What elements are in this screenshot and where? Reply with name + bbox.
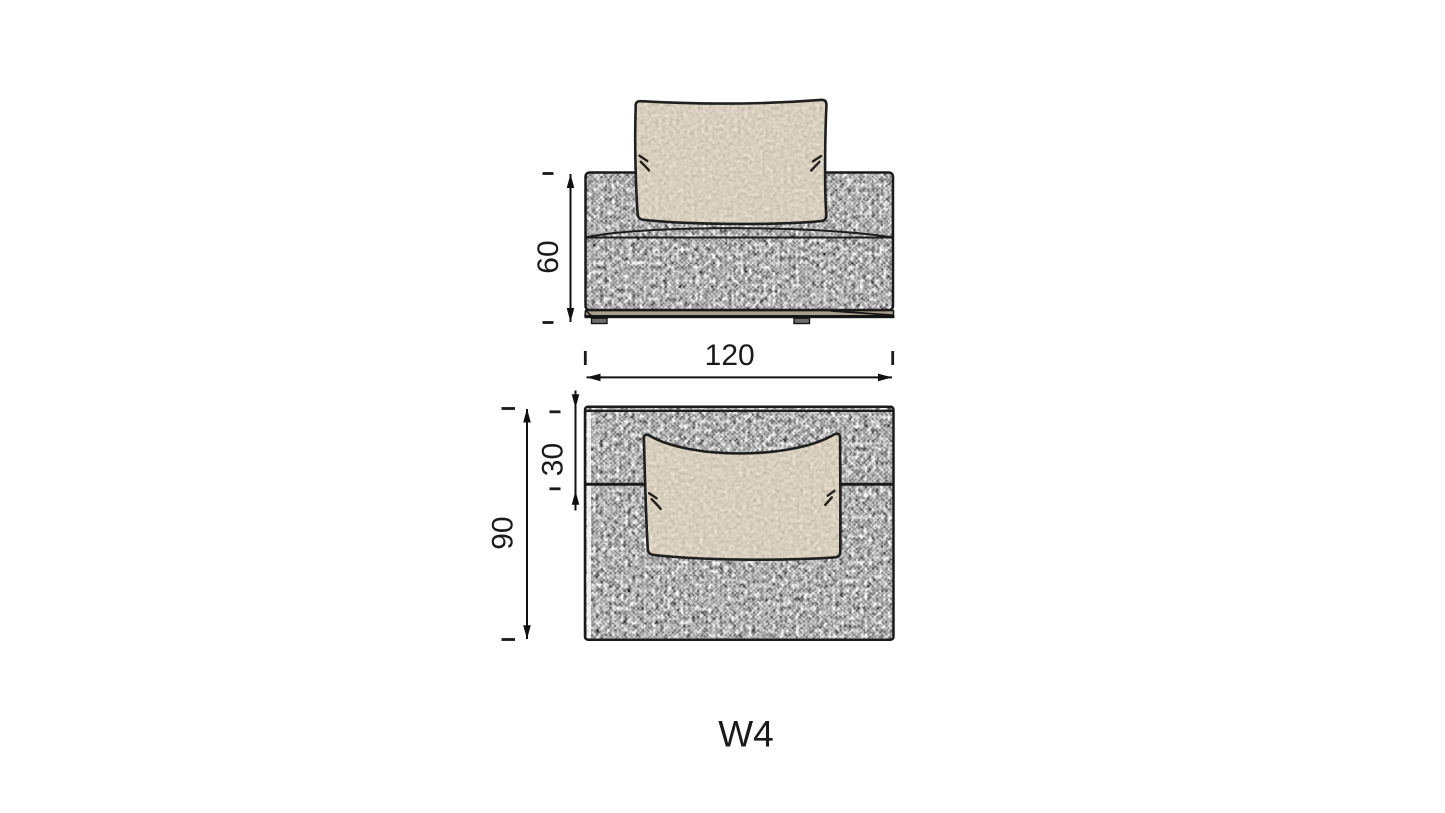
svg-text:W4: W4	[718, 714, 774, 755]
svg-text:30: 30	[537, 443, 570, 476]
svg-text:60: 60	[532, 240, 565, 273]
svg-text:90: 90	[487, 516, 520, 549]
svg-text:120: 120	[705, 339, 755, 372]
